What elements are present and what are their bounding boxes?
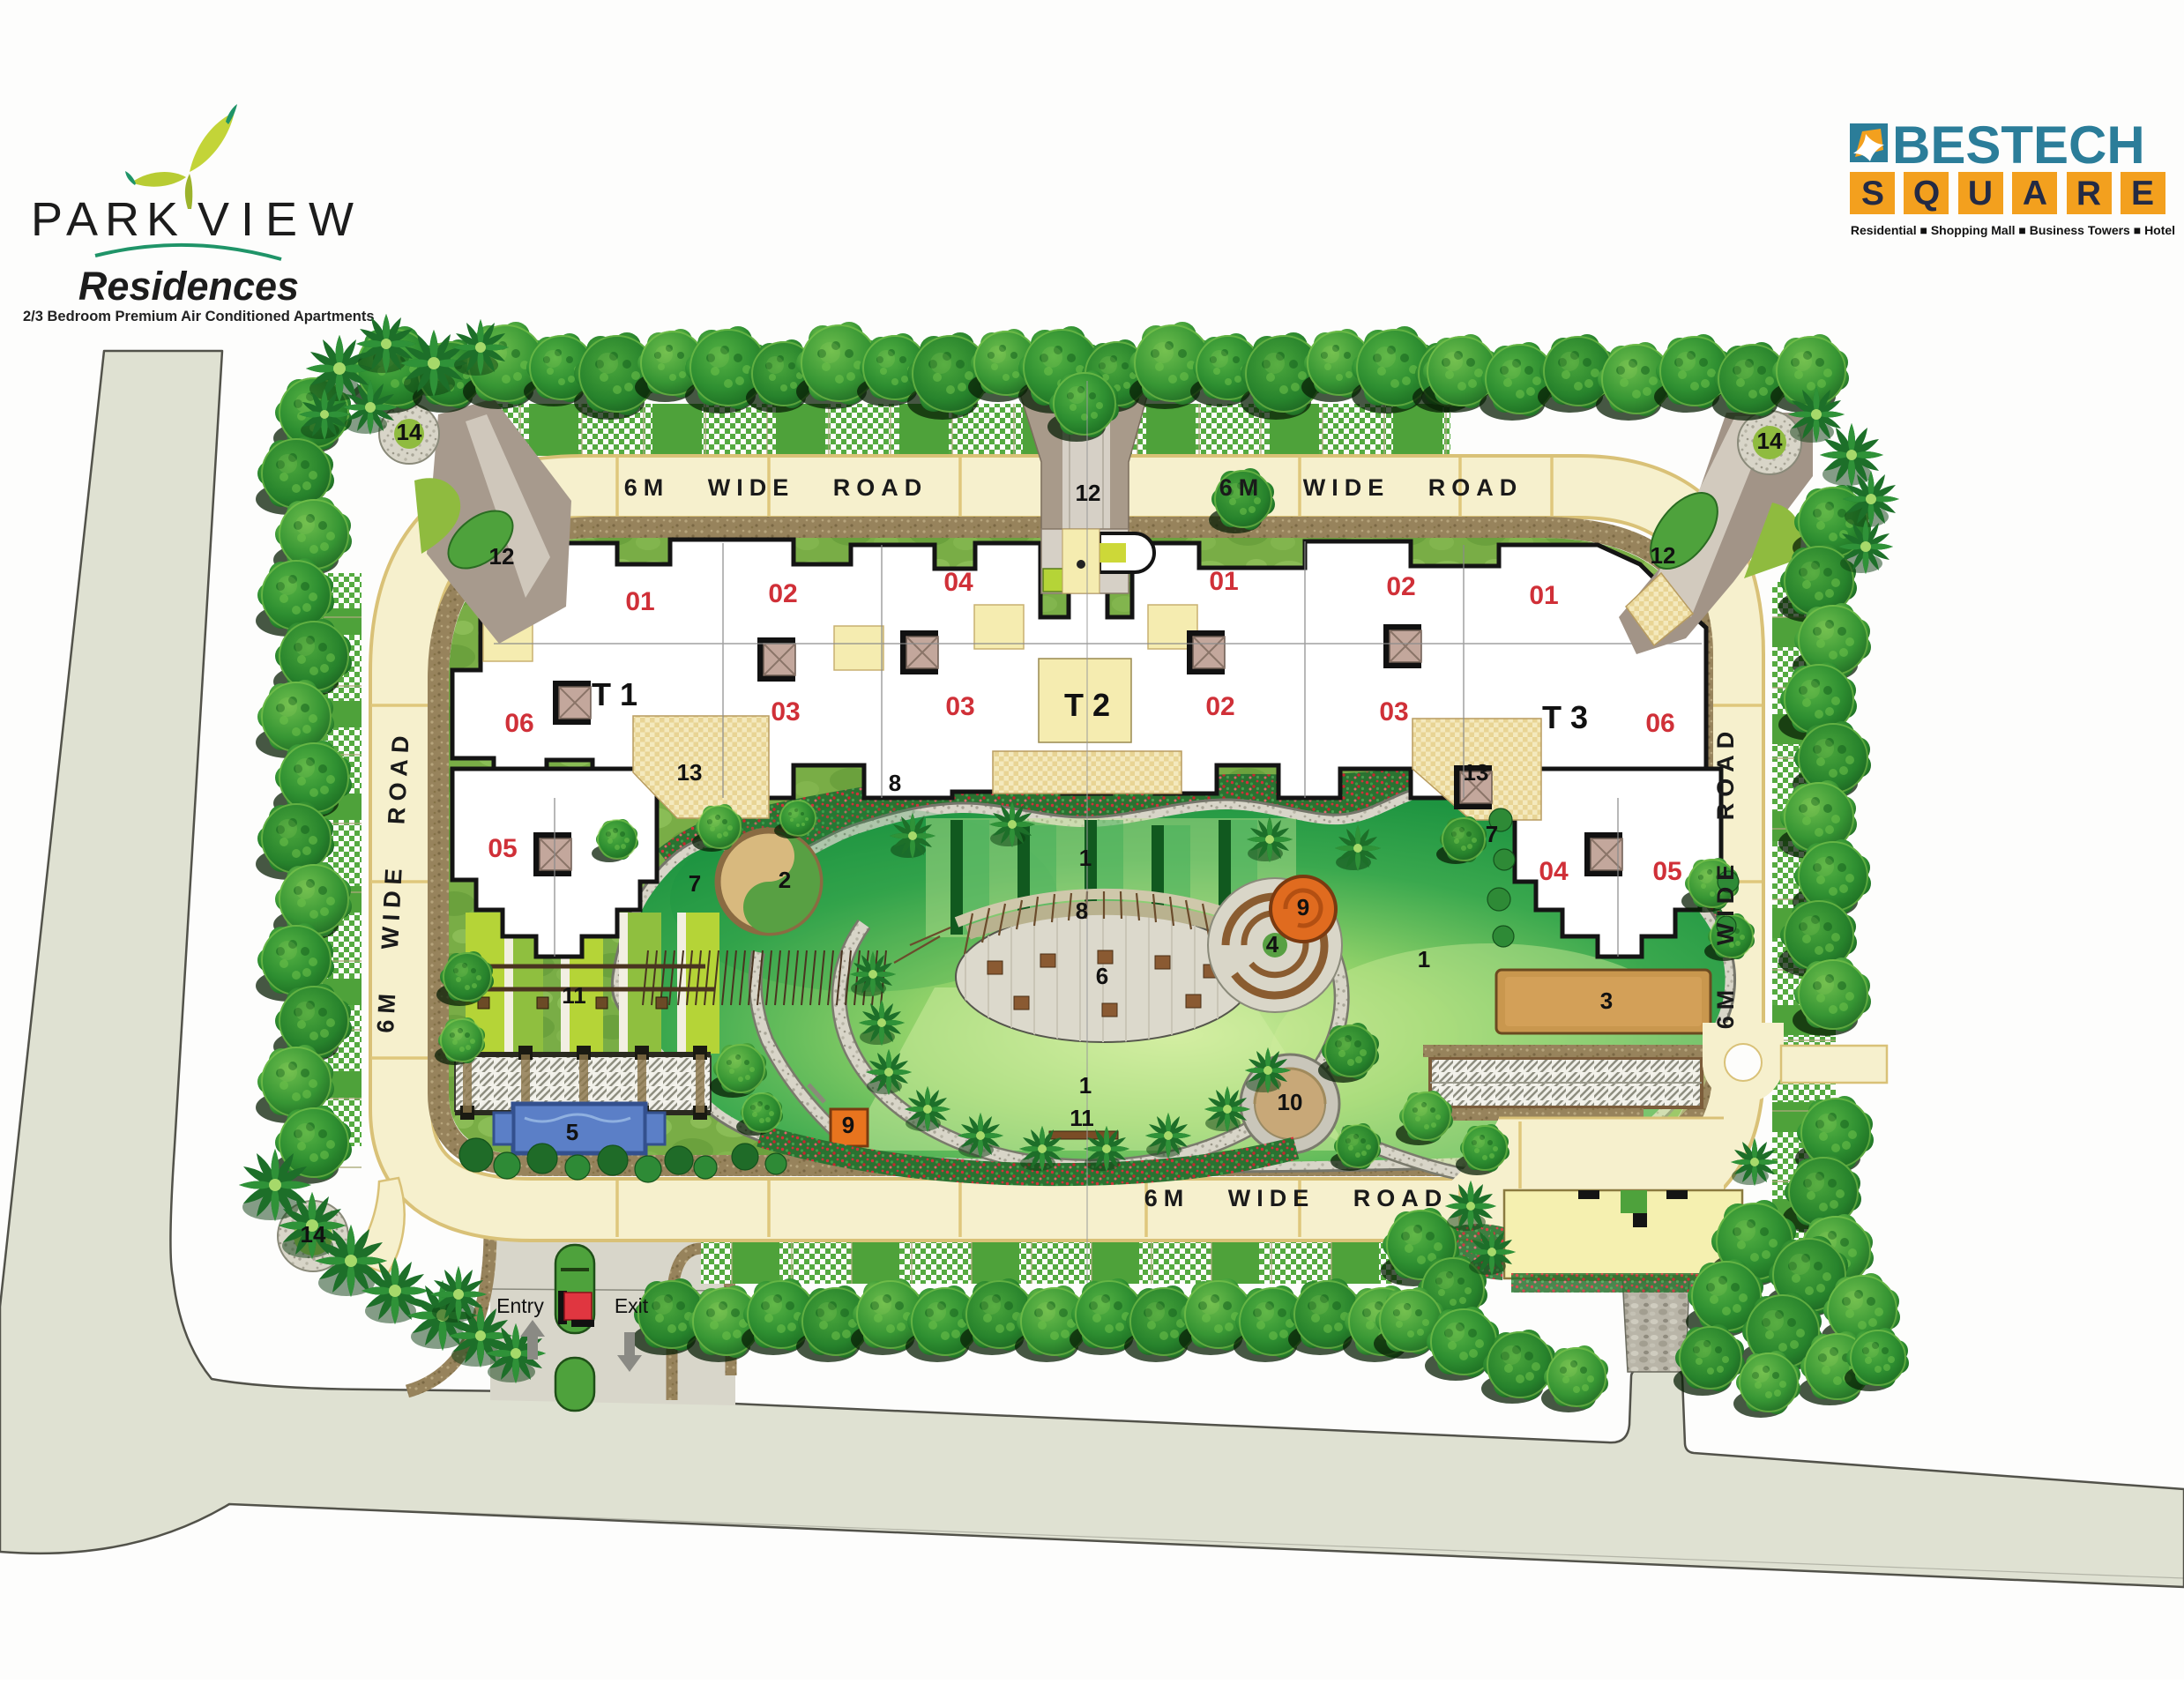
svg-text:8: 8 xyxy=(1076,898,1088,924)
svg-text:7: 7 xyxy=(1486,821,1498,847)
svg-text:T 3: T 3 xyxy=(1542,699,1588,735)
svg-text:R: R xyxy=(2076,175,2101,212)
svg-text:BESTECH: BESTECH xyxy=(1892,115,2145,175)
svg-text:04: 04 xyxy=(943,568,973,597)
svg-text:PARK: PARK xyxy=(31,193,185,246)
svg-text:11: 11 xyxy=(562,982,586,1009)
svg-text:6M WIDE ROAD: 6M WIDE ROAD xyxy=(1144,1185,1449,1211)
svg-text:12: 12 xyxy=(1651,542,1676,569)
svg-text:Entry: Entry xyxy=(496,1294,544,1317)
svg-text:4: 4 xyxy=(1266,931,1279,957)
svg-text:8: 8 xyxy=(889,770,901,796)
svg-text:13: 13 xyxy=(1464,759,1489,786)
svg-text:2/3 Bedroom Premium Air Condit: 2/3 Bedroom Premium Air Conditioned Apar… xyxy=(23,309,375,324)
svg-text:A: A xyxy=(2023,175,2047,212)
svg-text:01: 01 xyxy=(1529,581,1558,610)
svg-text:1: 1 xyxy=(1079,1072,1092,1099)
svg-text:6M WIDE ROAD: 6M WIDE ROAD xyxy=(1712,726,1739,1030)
svg-text:05: 05 xyxy=(1652,857,1681,886)
svg-text:06: 06 xyxy=(1645,709,1674,738)
svg-text:03: 03 xyxy=(945,692,974,721)
svg-text:9: 9 xyxy=(1297,894,1309,920)
svg-text:3: 3 xyxy=(1600,987,1613,1014)
svg-text:U: U xyxy=(1968,175,1993,212)
svg-text:10: 10 xyxy=(1278,1089,1303,1115)
svg-text:02: 02 xyxy=(768,579,797,608)
svg-text:05: 05 xyxy=(488,834,517,863)
svg-text:Residential ■ Shopping Mall ■: Residential ■ Shopping Mall ■ Business T… xyxy=(1851,223,2175,237)
svg-text:Residences: Residences xyxy=(78,264,299,309)
svg-text:E: E xyxy=(2131,175,2154,212)
svg-text:06: 06 xyxy=(504,709,533,738)
svg-text:1: 1 xyxy=(1418,946,1430,972)
svg-text:Q: Q xyxy=(1913,175,1940,212)
svg-text:S: S xyxy=(1861,175,1884,212)
svg-text:03: 03 xyxy=(771,697,800,727)
svg-text:13: 13 xyxy=(677,759,703,786)
svg-text:12: 12 xyxy=(489,543,515,570)
svg-text:2: 2 xyxy=(779,867,791,893)
svg-text:T 1: T 1 xyxy=(592,676,637,712)
svg-text:VIEW: VIEW xyxy=(198,193,365,246)
svg-text:6M WIDE ROAD: 6M WIDE ROAD xyxy=(1219,474,1524,501)
svg-text:02: 02 xyxy=(1386,572,1415,601)
svg-text:9: 9 xyxy=(842,1112,854,1138)
svg-text:14: 14 xyxy=(397,419,422,445)
svg-text:01: 01 xyxy=(625,587,654,616)
svg-text:04: 04 xyxy=(1539,857,1569,886)
svg-text:5: 5 xyxy=(566,1119,578,1145)
svg-text:01: 01 xyxy=(1209,567,1238,596)
svg-text:7: 7 xyxy=(689,870,701,897)
svg-text:02: 02 xyxy=(1205,692,1234,721)
svg-text:11: 11 xyxy=(1070,1105,1094,1131)
svg-text:14: 14 xyxy=(1757,428,1783,454)
svg-text:Exit: Exit xyxy=(615,1294,649,1317)
svg-text:6: 6 xyxy=(1096,963,1108,989)
svg-text:12: 12 xyxy=(1076,480,1101,506)
svg-text:14: 14 xyxy=(301,1221,326,1248)
svg-text:6M WIDE ROAD: 6M WIDE ROAD xyxy=(624,474,928,501)
svg-text:1: 1 xyxy=(1079,845,1092,871)
svg-text:03: 03 xyxy=(1379,697,1408,727)
